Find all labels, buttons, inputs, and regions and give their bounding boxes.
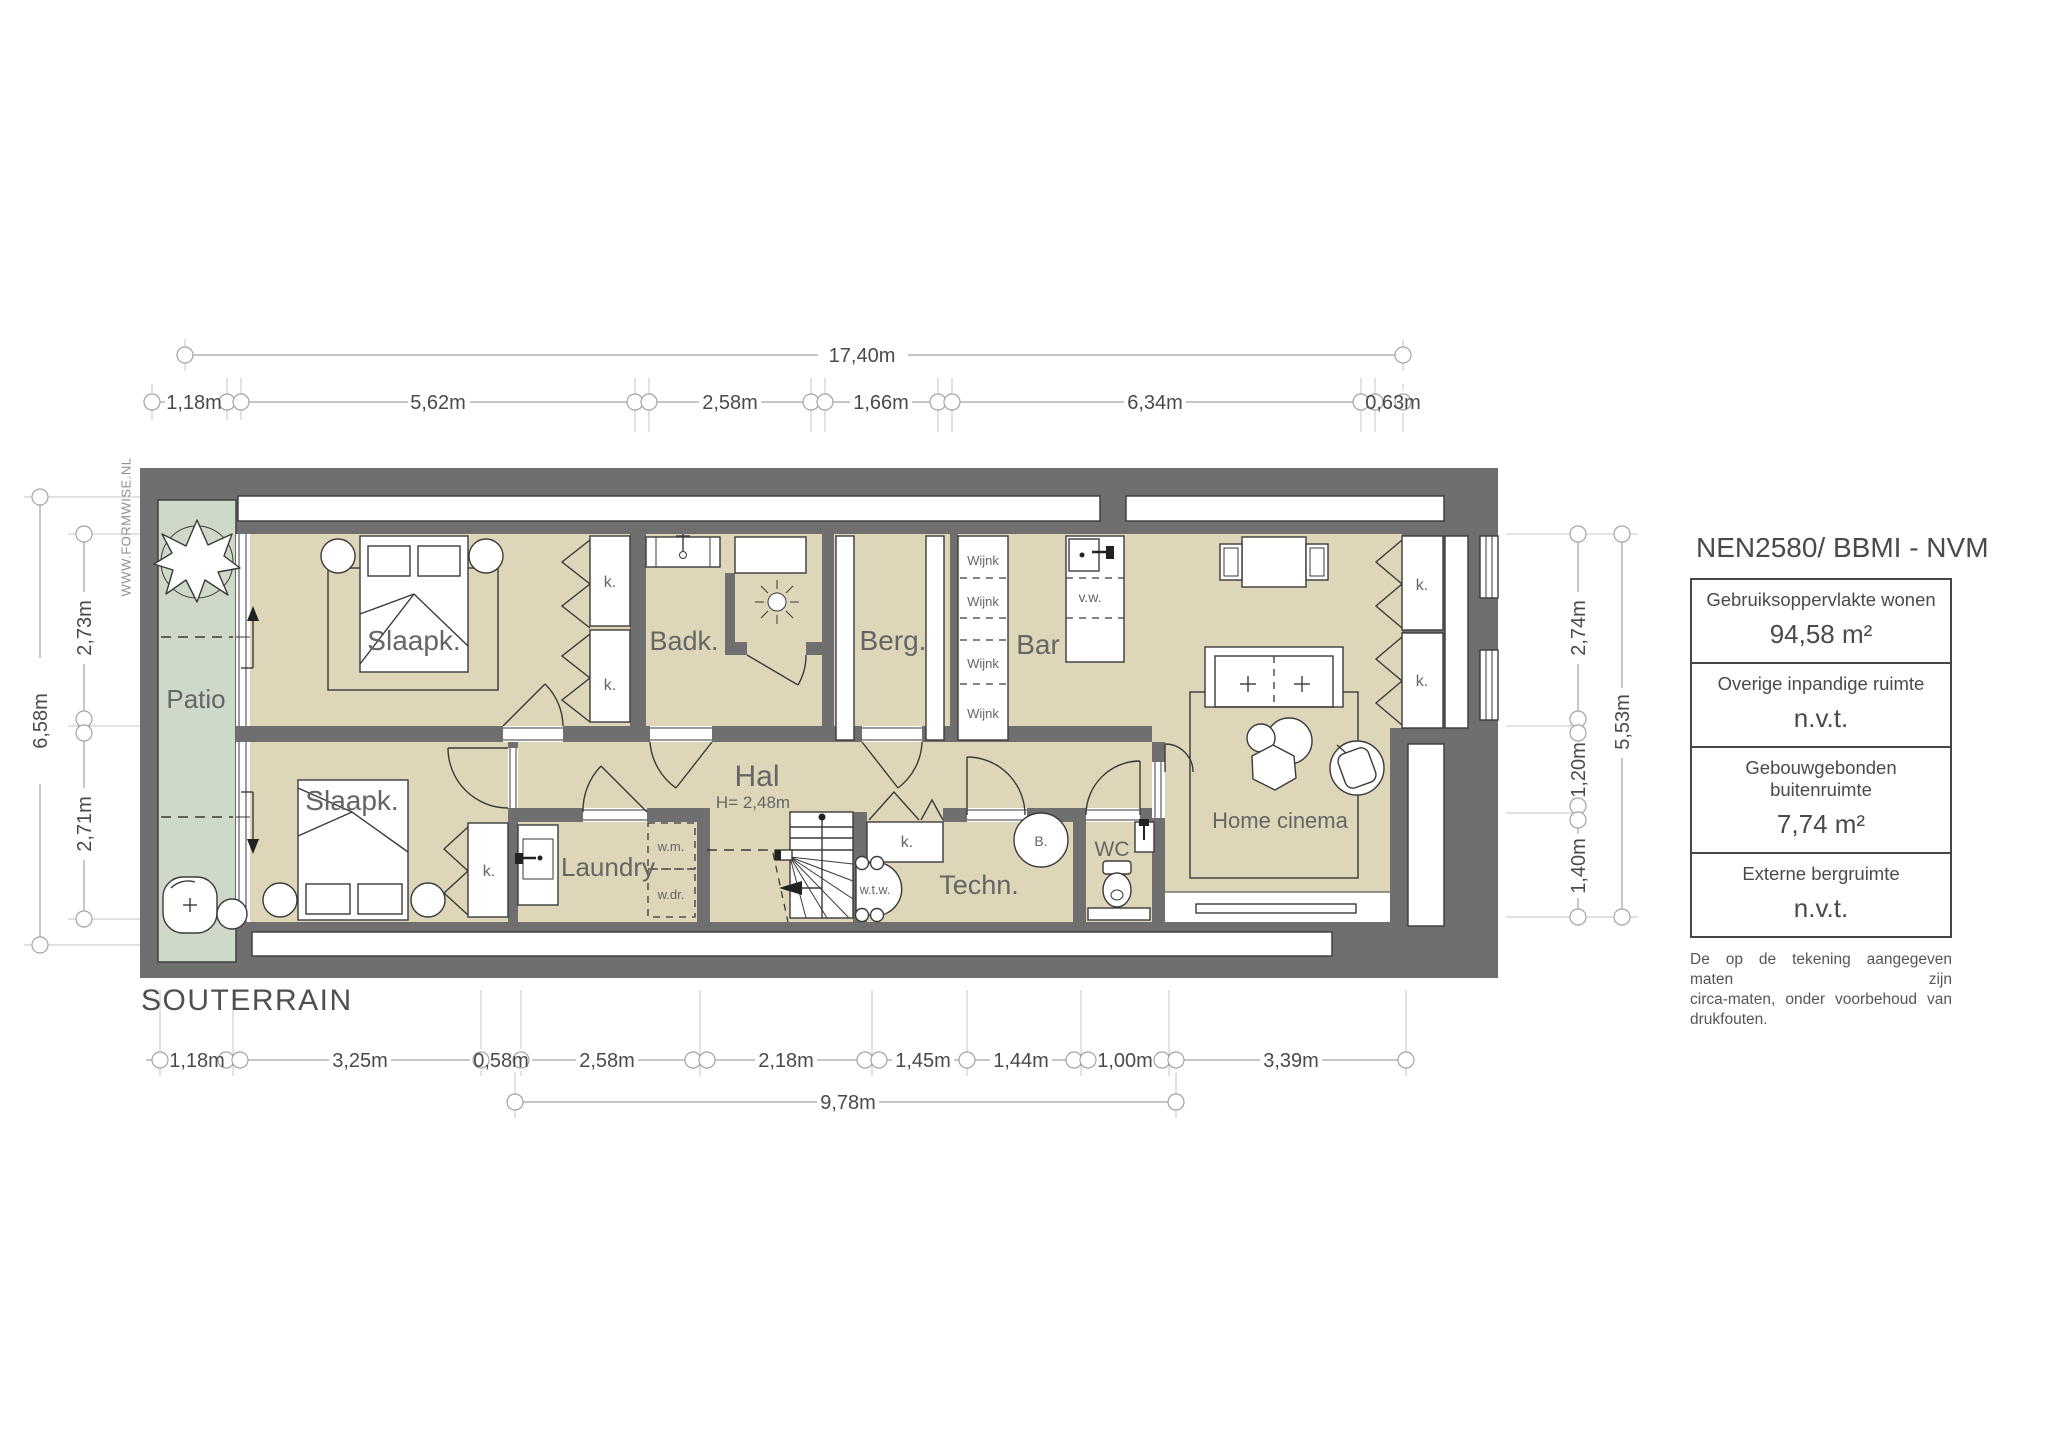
legend-disclaimer: De op de tekening aangegeven maten zijn … xyxy=(1690,950,1952,1030)
legend-row: Gebruiksoppervlakte wonen 94,58 m² xyxy=(1692,580,1950,662)
area-legend: NEN2580/ BBMI - NVM Gebruiksoppervlakte … xyxy=(1690,532,1952,1030)
closet-label: k. xyxy=(901,834,913,851)
dim-top-seg-0: 1,18m xyxy=(166,392,222,414)
shower-head-icon xyxy=(755,580,799,624)
dryer-label: w.dr. xyxy=(657,887,685,902)
room-label-storage: Berg. xyxy=(860,625,927,656)
sideboard xyxy=(1445,536,1468,728)
dim-top-seg-5: 0,63m xyxy=(1365,392,1421,414)
laundry-sink-icon xyxy=(515,825,558,905)
dim-top-seg-4: 6,34m xyxy=(1127,392,1183,414)
lightwell xyxy=(1408,744,1444,926)
legend-row-label: Externe bergruimte xyxy=(1694,863,1948,885)
wine-rack-label: Wijnk xyxy=(967,656,999,671)
bar-sink-label: v.w. xyxy=(1078,589,1101,605)
dim-bottom-seg-2: 0,58m xyxy=(473,1050,529,1072)
closet-label: k. xyxy=(604,677,616,694)
legend-row-value: n.v.t. xyxy=(1694,893,1948,924)
dim-left-seg-1: 2,71m xyxy=(74,796,96,852)
legend-row-label: Gebruiksoppervlakte wonen xyxy=(1694,589,1948,611)
nightstand xyxy=(411,883,445,917)
dim-left-total: 6,58m xyxy=(30,693,52,749)
room-label-hall: Hal xyxy=(734,760,779,793)
dimension-row-top-total: 17,40m xyxy=(177,339,1411,371)
room-label-technical: Techn. xyxy=(939,870,1019,900)
room-label-wc: WC xyxy=(1095,838,1130,861)
wine-rack: Wijnk Wijnk Wijnk Wijnk xyxy=(958,536,1008,740)
legend-row: Overige inpandige ruimte n.v.t. xyxy=(1692,662,1950,746)
boiler-label: B. xyxy=(1034,833,1047,849)
dim-bottom-seg-3: 2,58m xyxy=(579,1050,635,1072)
room-label-bathroom: Badk. xyxy=(649,626,718,656)
nightstand xyxy=(263,883,297,917)
closet xyxy=(590,630,630,722)
table-and-chairs-icon xyxy=(1220,537,1328,587)
dim-right-total: 5,53m xyxy=(1612,694,1634,750)
room-label-patio: Patio xyxy=(166,684,225,714)
wc-sink-icon xyxy=(1135,819,1154,852)
shower-tray xyxy=(735,537,806,573)
room-label-bedroom2: Slaapk. xyxy=(305,785,398,816)
legend-row: Externe bergruimte n.v.t. xyxy=(1692,852,1950,936)
dim-top-seg-2: 2,58m xyxy=(702,392,758,414)
closet-label: k. xyxy=(1416,673,1428,690)
legend-row-value: 7,74 m² xyxy=(1694,809,1948,840)
washing-machine-label: w.m. xyxy=(657,839,685,854)
legend-title: NEN2580/ BBMI - NVM xyxy=(1696,532,1952,564)
dimension-row-top-segments: 1,18m 5,62m 2,58m 1,66m 6,34m 0,63m xyxy=(144,378,1421,432)
bar-counter: v.w. xyxy=(1066,536,1124,662)
dim-bottom-seg-5: 1,45m xyxy=(895,1050,951,1072)
closet-label: k. xyxy=(1416,577,1428,594)
legend-table: Gebruiksoppervlakte wonen 94,58 m² Overi… xyxy=(1690,578,1952,938)
floor-title: SOUTERRAIN xyxy=(141,984,353,1018)
patio-sliding-door xyxy=(236,534,250,922)
sofa-icon xyxy=(1205,647,1343,707)
vanity-sink-icon xyxy=(646,534,720,567)
dim-top-seg-3: 1,66m xyxy=(853,392,909,414)
swivel-chair-icon xyxy=(1330,741,1384,795)
toilet-icon xyxy=(1103,861,1131,907)
legend-row-value: n.v.t. xyxy=(1694,703,1948,734)
legend-disclaimer-line2: circa-maten, onder voorbehoud van drukfo… xyxy=(1690,990,1952,1030)
wine-rack-label: Wijnk xyxy=(967,594,999,609)
room-label-hall-height: H= 2,48m xyxy=(716,793,790,812)
closet-label: k. xyxy=(604,574,616,591)
room-label-bedroom1: Slaapk. xyxy=(367,625,460,656)
nightstand xyxy=(469,539,503,573)
dimension-column-right: 2,74m 1,20m 1,40m 5,53m xyxy=(1506,526,1638,925)
dim-bottom-seg-8: 3,39m xyxy=(1263,1050,1319,1072)
room-label-laundry: Laundry xyxy=(561,852,655,882)
dimension-row-bottom-total: 9,78m xyxy=(507,1072,1184,1118)
legend-row-label: Overige inpandige ruimte xyxy=(1694,673,1948,695)
dim-left-seg-0: 2,73m xyxy=(74,600,96,656)
room-label-bar: Bar xyxy=(1016,629,1060,660)
dim-bottom-total: 9,78m xyxy=(820,1092,876,1114)
dimension-column-left: 6,58m 2,73m 2,71m xyxy=(24,489,156,953)
wine-rack-label: Wijnk xyxy=(967,553,999,568)
legend-disclaimer-line1: De op de tekening aangegeven maten zijn xyxy=(1690,950,1952,990)
legend-row-label: Gebouwgebonden buitenruimte xyxy=(1694,757,1948,801)
room-label-home-cinema: Home cinema xyxy=(1212,808,1348,833)
dim-top-seg-1: 5,62m xyxy=(410,392,466,414)
floorplan-page: 17,40m 1,18m 5,62m 2,58m 1,66m 6,34m 0,6… xyxy=(0,0,2048,1447)
legend-row-value: 94,58 m² xyxy=(1694,619,1948,650)
closet-label: k. xyxy=(483,863,495,880)
dim-bottom-seg-1: 3,25m xyxy=(332,1050,388,1072)
wine-rack-label: Wijnk xyxy=(967,706,999,721)
dim-right-seg-2: 1,40m xyxy=(1568,838,1590,894)
dim-bottom-seg-4: 2,18m xyxy=(758,1050,814,1072)
dim-right-seg-1: 1,20m xyxy=(1568,742,1590,798)
dim-bottom-seg-0: 1,18m xyxy=(169,1050,225,1072)
dim-right-seg-0: 2,74m xyxy=(1568,600,1590,656)
dim-bottom-seg-6: 1,44m xyxy=(993,1050,1049,1072)
watermark: WWW.FORMWISE.NL xyxy=(119,458,134,597)
projection-screen xyxy=(1196,904,1356,913)
heat-recovery-label: w.t.w. xyxy=(859,883,891,897)
legend-row: Gebouwgebonden buitenruimte 7,74 m² xyxy=(1692,746,1950,852)
nightstand xyxy=(321,539,355,573)
dim-bottom-seg-7: 1,00m xyxy=(1097,1050,1153,1072)
dim-top-total: 17,40m xyxy=(829,345,896,367)
